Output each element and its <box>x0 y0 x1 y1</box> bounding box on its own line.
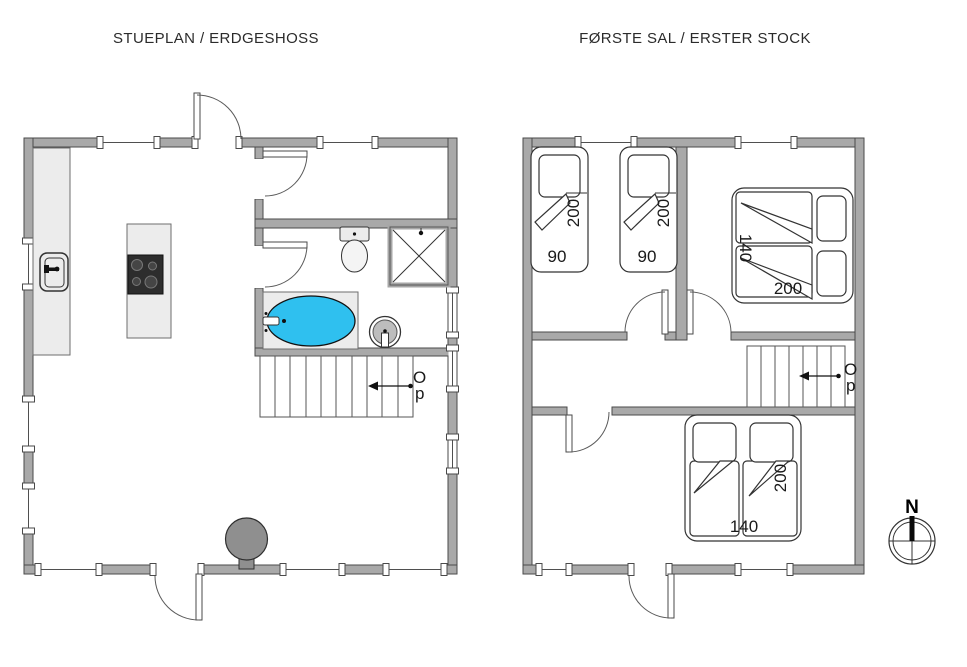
floor-plan-drawing: STUEPLAN / ERDGESHOSS FØRSTE SAL / ERSTE… <box>0 0 967 667</box>
wood-stove-icon <box>226 518 268 569</box>
window <box>280 564 345 576</box>
pillow-icon <box>693 423 736 462</box>
double-bed-top: 140 200 <box>732 188 853 303</box>
window <box>23 396 35 452</box>
first-staircase: O p <box>747 346 857 407</box>
shower-icon <box>390 227 448 285</box>
pillow-icon <box>628 155 669 197</box>
window <box>317 137 378 149</box>
window <box>735 137 797 149</box>
window <box>536 564 572 576</box>
bed-length-label: 200 <box>774 279 802 298</box>
double-bed-bottom: 140 200 <box>685 415 801 541</box>
north-needle-icon <box>910 516 915 541</box>
bed-length-label: 200 <box>654 199 673 227</box>
kitchen-sink <box>40 253 68 291</box>
bed-width-label: 90 <box>638 247 657 266</box>
ground-staircase: O p <box>260 356 426 417</box>
kitchen <box>33 148 171 355</box>
window <box>35 564 102 576</box>
compass-icon: N <box>889 497 935 564</box>
pillow-icon <box>817 196 846 241</box>
tub-faucet-icon <box>263 317 279 325</box>
balcony-door-south <box>628 564 674 619</box>
pillow-icon <box>817 251 846 296</box>
single-bed-right: 200 90 <box>620 147 677 272</box>
stairs-label-up: p <box>415 384 424 403</box>
bed-width-label: 140 <box>730 517 758 536</box>
window <box>383 564 447 576</box>
cooktop-icon <box>128 255 163 294</box>
first-floor-title: FØRSTE SAL / ERSTER STOCK <box>579 30 811 47</box>
window <box>735 564 793 576</box>
kitchen-counter <box>33 148 70 355</box>
pillow-icon <box>750 423 793 462</box>
entry-door-north <box>192 93 242 149</box>
window <box>97 137 160 149</box>
bed-length-label: 200 <box>564 199 583 227</box>
single-bed-left: 200 90 <box>531 147 588 272</box>
ground-floor-title: STUEPLAN / ERDGESHOSS <box>113 30 319 47</box>
pillow-icon <box>539 155 580 197</box>
bed-width-label: 140 <box>736 234 755 262</box>
bedroom-left-door <box>625 290 668 334</box>
ground-floor-plan: O p <box>23 93 459 620</box>
bedroom-right-door <box>687 290 731 334</box>
bathroom-door <box>255 242 308 288</box>
toilet-icon <box>340 227 369 272</box>
stairs-label-up: p <box>846 376 855 395</box>
north-label: N <box>905 497 919 518</box>
terrace-door-south <box>150 564 204 621</box>
bed-length-label: 200 <box>771 464 790 492</box>
window <box>23 483 35 534</box>
first-floor-plan: 200 90 200 90 140 200 <box>523 137 864 619</box>
bed-width-label: 90 <box>548 247 567 266</box>
floor-plan-page: STUEPLAN / ERDGESHOSS FØRSTE SAL / ERSTE… <box>0 0 967 667</box>
bathtub <box>263 292 358 349</box>
washbasin-icon <box>370 317 401 348</box>
bedroom-bottom-door <box>566 412 609 452</box>
